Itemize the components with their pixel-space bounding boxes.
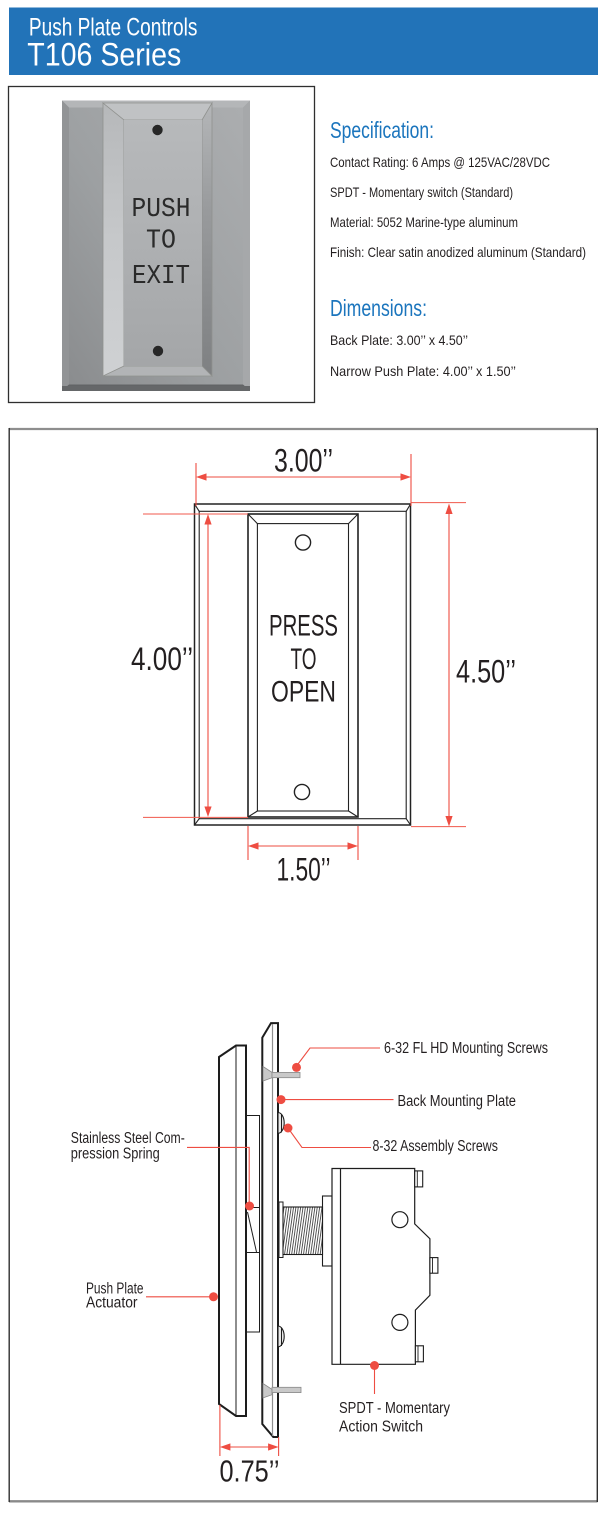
- svg-text:PUSH: PUSH: [132, 194, 191, 224]
- svg-text:TO: TO: [291, 643, 317, 676]
- svg-text:4.50’’: 4.50’’: [456, 654, 516, 690]
- svg-text:OPEN: OPEN: [271, 676, 336, 709]
- svg-text:1.50’’: 1.50’’: [277, 852, 331, 888]
- svg-text:Actuator: Actuator: [86, 1295, 138, 1312]
- svg-text:Material: 5052 Marine-type alu: Material: 5052 Marine-type aluminum: [330, 214, 518, 230]
- svg-text:6-32 FL HD Mounting Screws: 6-32 FL HD Mounting Screws: [384, 1040, 548, 1057]
- svg-text:Dimensions:: Dimensions:: [330, 295, 427, 321]
- svg-text:4.00’’: 4.00’’: [131, 641, 193, 677]
- svg-text:TO: TO: [146, 226, 176, 256]
- svg-text:T106 Series: T106 Series: [27, 37, 181, 73]
- svg-text:PRESS: PRESS: [269, 610, 338, 643]
- svg-text:8-32 Assembly Screws: 8-32 Assembly Screws: [373, 1138, 499, 1155]
- svg-text:EXIT: EXIT: [132, 261, 190, 291]
- svg-text:pression Spring: pression Spring: [71, 1146, 160, 1163]
- svg-text:Specification:: Specification:: [330, 117, 434, 143]
- svg-text:Narrow Push Plate: 4.00’’ x 1.: Narrow Push Plate: 4.00’’ x 1.50’’: [330, 363, 516, 379]
- svg-text:Back Mounting Plate: Back Mounting Plate: [398, 1093, 517, 1110]
- svg-text:3.00’’: 3.00’’: [274, 443, 333, 479]
- svg-text:Finish: Clear satin anodized a: Finish: Clear satin anodized aluminum (S…: [330, 244, 586, 260]
- svg-text:Contact Rating: 6 Amps @ 125VA: Contact Rating: 6 Amps @ 125VAC/28VDC: [330, 154, 550, 170]
- svg-text:SPDT - Momentary switch (Stand: SPDT - Momentary switch (Standard): [330, 184, 513, 200]
- svg-text:Action Switch: Action Switch: [339, 1419, 423, 1436]
- svg-text:SPDT - Momentary: SPDT - Momentary: [339, 1400, 450, 1417]
- svg-text:0.75’’: 0.75’’: [220, 1454, 280, 1489]
- svg-text:Back Plate: 3.00’’ x 4.50’’: Back Plate: 3.00’’ x 4.50’’: [330, 332, 468, 348]
